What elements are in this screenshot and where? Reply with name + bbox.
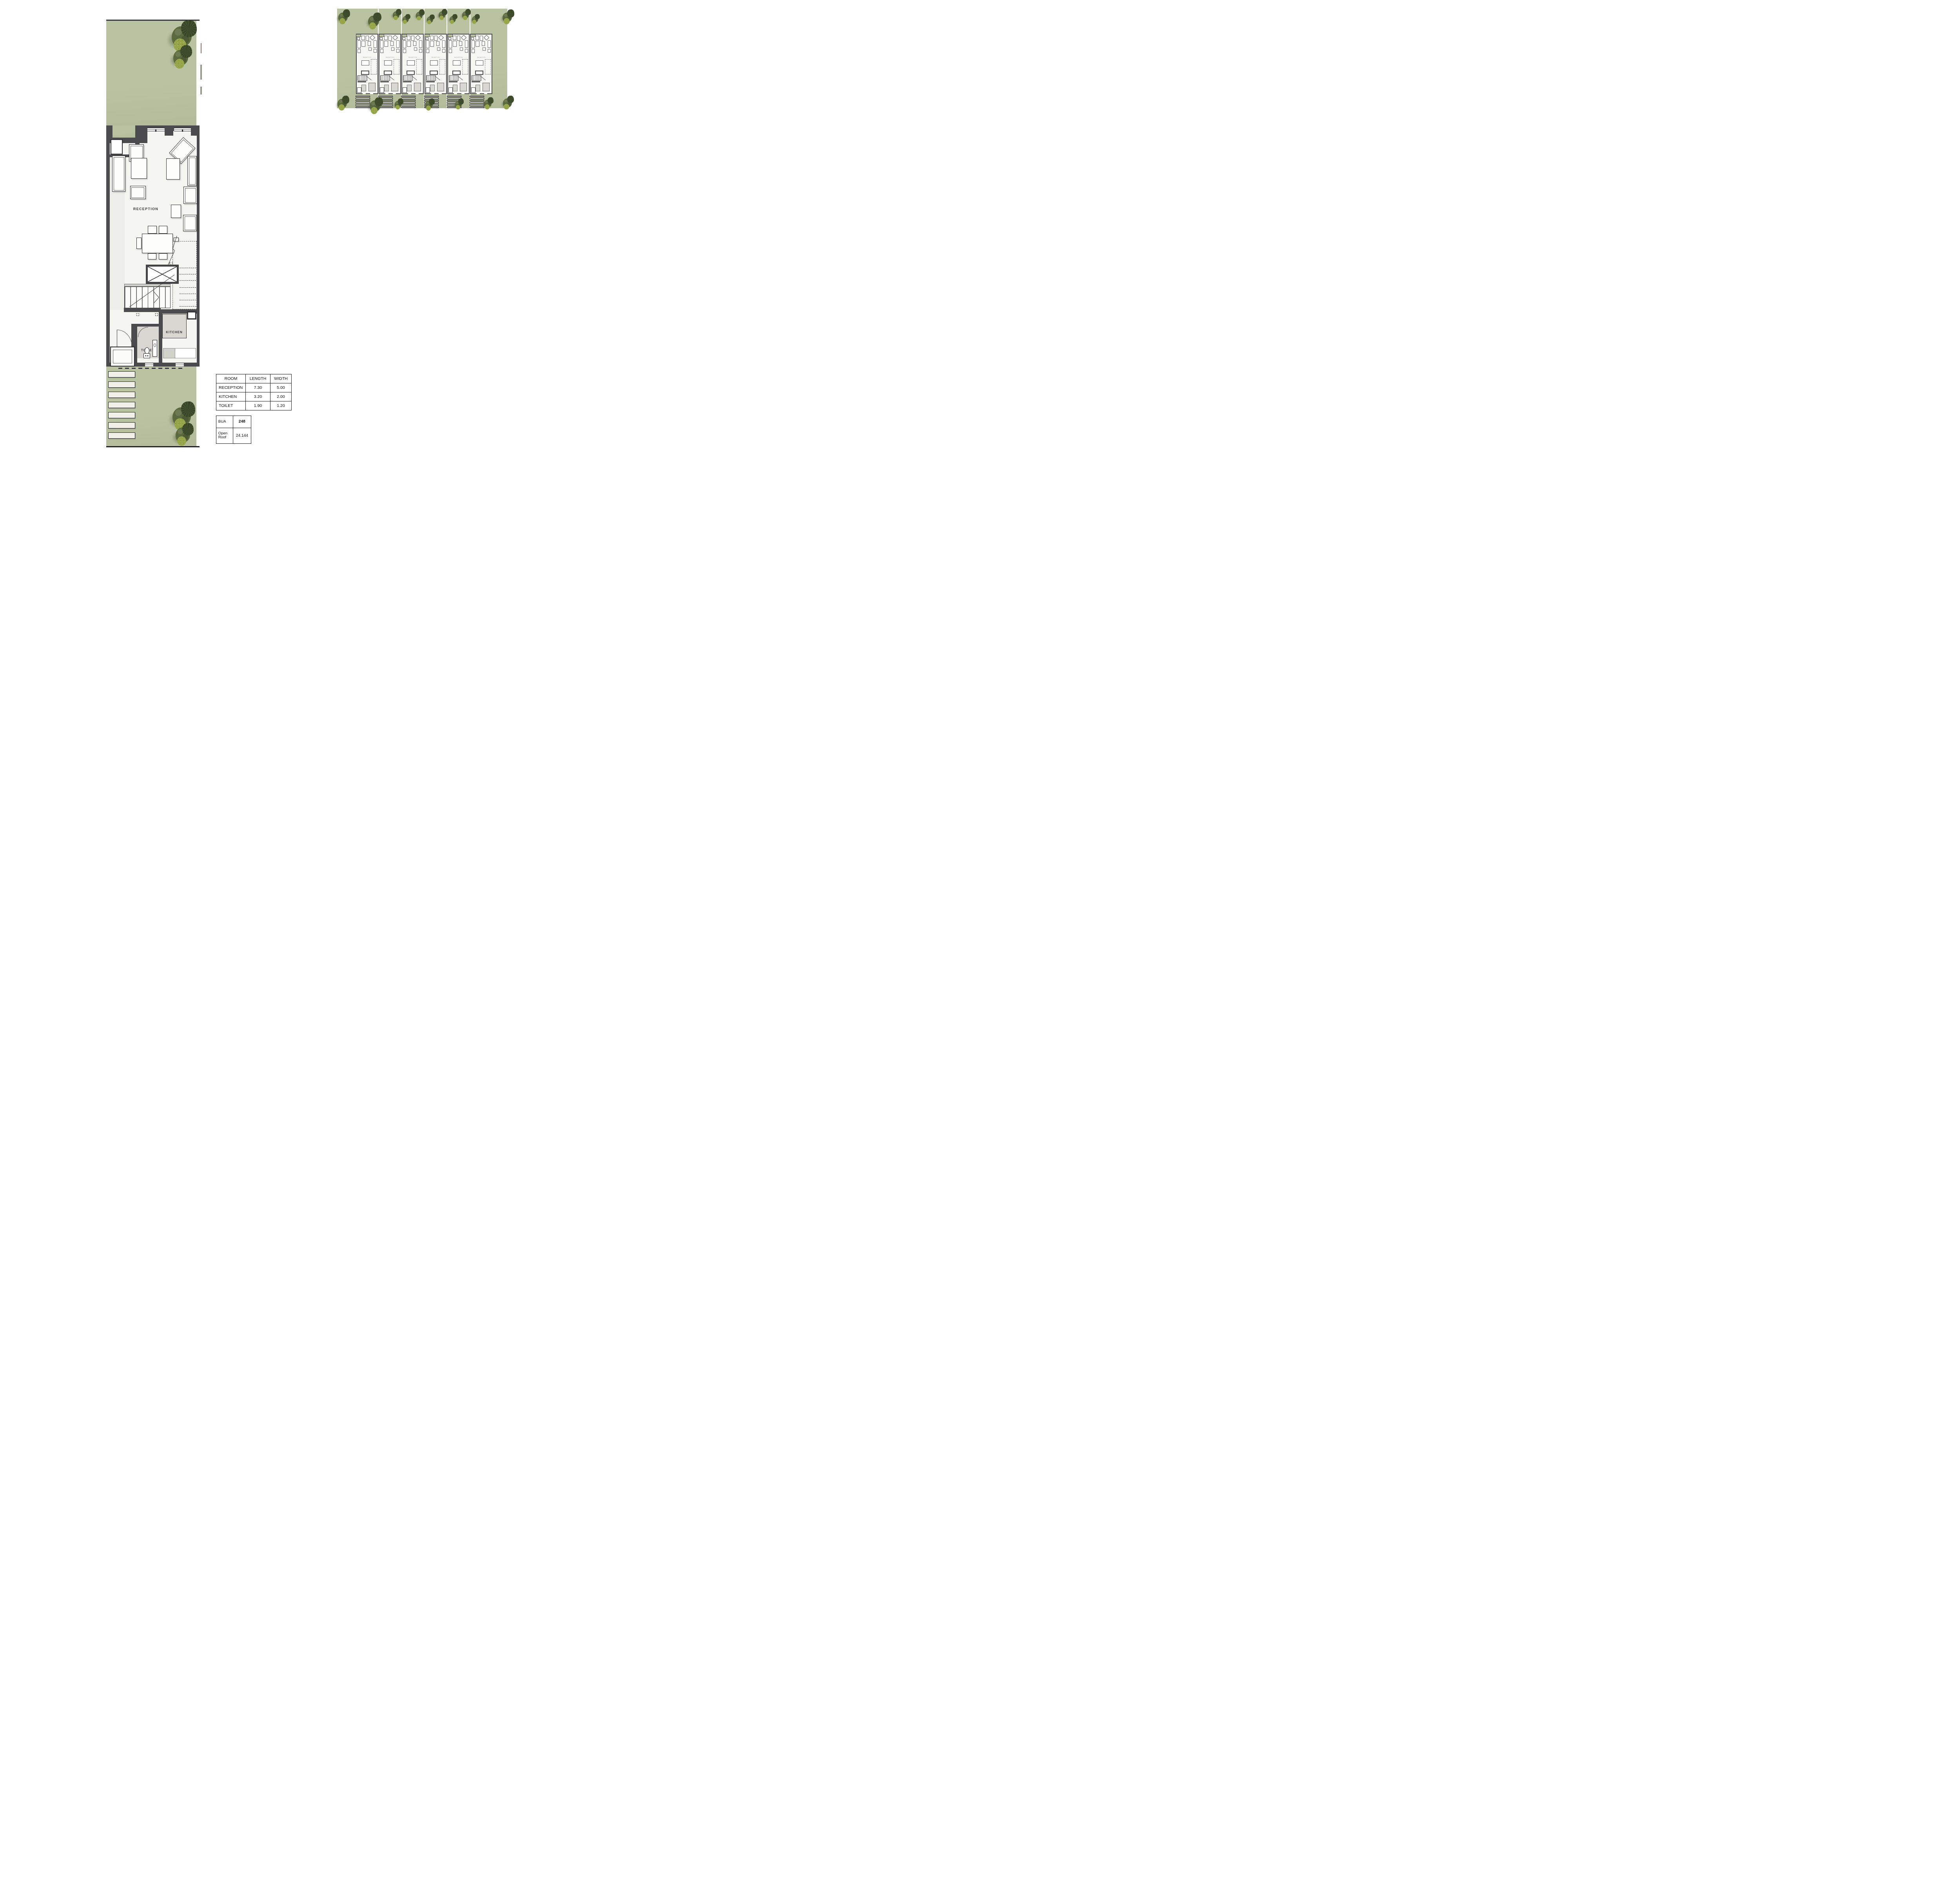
column-header: LENGTH bbox=[246, 374, 270, 383]
unit-porch bbox=[471, 87, 475, 93]
unit-sofa-rotated bbox=[438, 35, 444, 40]
unit-elevator-icon bbox=[452, 71, 461, 75]
site-plan-unit: RECEPTION bbox=[356, 34, 378, 94]
table-cell: RECEPTION bbox=[216, 383, 246, 392]
floorplan-sheet: RECEPTION bbox=[0, 0, 516, 472]
unit-dining-table bbox=[361, 60, 369, 65]
path-stone bbox=[470, 100, 484, 102]
unit-void-area bbox=[462, 59, 468, 74]
site-plan-unit: RECEPTION bbox=[425, 34, 447, 94]
tree-icon bbox=[368, 13, 381, 29]
unit-reception-label: RECEPTION bbox=[449, 56, 468, 58]
unit-elevator-icon bbox=[407, 71, 415, 75]
table-cell: Open Roof bbox=[216, 428, 233, 443]
unit-toilet bbox=[407, 85, 412, 91]
unit-garden-notch bbox=[379, 34, 384, 37]
unit-porch bbox=[357, 87, 361, 93]
unit-garden-notch bbox=[425, 34, 430, 37]
unit-reception-label: RECEPTION bbox=[403, 56, 422, 58]
unit-stairs bbox=[426, 75, 436, 81]
path-stone bbox=[401, 107, 416, 108]
unit-sofa-rotated bbox=[370, 35, 375, 40]
unit-void-area bbox=[485, 59, 491, 74]
unit-toilet bbox=[475, 85, 480, 91]
path-stone bbox=[378, 96, 393, 97]
unit-void-area bbox=[416, 59, 422, 74]
tree-icon bbox=[392, 10, 401, 20]
table-row: BUA248 bbox=[216, 416, 251, 428]
site-plan-unit: RECEPTION bbox=[447, 34, 470, 94]
room-dimensions-table: ROOMLENGTHWIDTH RECEPTION7.305.00KITCHEN… bbox=[216, 374, 292, 410]
table-cell: 3.20 bbox=[246, 392, 270, 401]
tree-icon bbox=[338, 10, 350, 24]
unit-dining-table bbox=[475, 60, 483, 65]
unit-kitchen bbox=[414, 83, 421, 91]
unit-porch bbox=[448, 87, 453, 93]
tree-icon bbox=[394, 99, 403, 109]
path-stone bbox=[470, 98, 484, 99]
unit-shaft-icon bbox=[357, 37, 360, 40]
table-header-row: ROOMLENGTHWIDTH bbox=[216, 374, 292, 383]
unit-garden-notch bbox=[448, 34, 453, 37]
table-row: RECEPTION7.305.00 bbox=[216, 383, 292, 392]
tree-icon bbox=[455, 99, 463, 109]
unit-stairs bbox=[380, 75, 390, 81]
path-stone bbox=[470, 96, 484, 97]
unit-stairs bbox=[449, 75, 459, 81]
path-stone bbox=[356, 100, 370, 102]
unit-garden-notch bbox=[471, 34, 475, 37]
unit-kitchen bbox=[483, 83, 490, 91]
unit-toilet bbox=[453, 85, 457, 91]
site-plan-unit: RECEPTION bbox=[401, 34, 424, 94]
path-stone bbox=[401, 104, 416, 106]
unit-void-area bbox=[394, 59, 399, 74]
path-stone bbox=[424, 96, 439, 97]
unit-shaft-icon bbox=[380, 37, 383, 40]
table-cell: 2.00 bbox=[270, 392, 292, 401]
table-cell: 248 bbox=[233, 416, 251, 428]
unit-shaft-icon bbox=[426, 37, 428, 40]
unit-dining-table bbox=[407, 60, 415, 65]
unit-kitchen bbox=[368, 83, 376, 91]
unit-garden-notch bbox=[402, 34, 407, 37]
path-stone bbox=[447, 96, 461, 97]
unit-void-area bbox=[371, 59, 377, 74]
unit-elevator-icon bbox=[430, 71, 438, 75]
table-row: Open Roof24.144 bbox=[216, 428, 251, 443]
tree-icon bbox=[369, 98, 383, 113]
unit-dining-table bbox=[384, 60, 392, 65]
path-stone bbox=[401, 102, 416, 103]
unit-elevator-icon bbox=[475, 71, 483, 75]
tree-icon bbox=[484, 98, 493, 109]
table-cell: BUA bbox=[216, 416, 233, 428]
unit-void-area bbox=[439, 59, 445, 74]
tree-icon bbox=[337, 96, 349, 110]
table-cell: 24.144 bbox=[233, 428, 251, 443]
table-cell: 5.00 bbox=[270, 383, 292, 392]
unit-reception-label: RECEPTION bbox=[472, 56, 491, 58]
path-stone bbox=[401, 96, 416, 97]
unit-elevator-icon bbox=[361, 71, 369, 75]
table-row: TOILET1.901.20 bbox=[216, 401, 292, 410]
unit-shaft-icon bbox=[448, 37, 451, 40]
table-cell: KITCHEN bbox=[216, 392, 246, 401]
tree-icon bbox=[416, 10, 424, 20]
table-cell: 1.20 bbox=[270, 401, 292, 410]
unit-stairs bbox=[358, 75, 367, 81]
unit-sofa-rotated bbox=[392, 35, 398, 40]
table-row: KITCHEN3.202.00 bbox=[216, 392, 292, 401]
unit-reception-label: RECEPTION bbox=[426, 56, 445, 58]
unit-elevator-icon bbox=[384, 71, 392, 75]
unit-kitchen bbox=[437, 83, 444, 91]
unit-sofa-rotated bbox=[415, 35, 421, 40]
unit-reception-label: RECEPTION bbox=[380, 56, 399, 58]
path-stone bbox=[401, 98, 416, 99]
tree-icon bbox=[438, 10, 447, 20]
unit-kitchen bbox=[391, 83, 398, 91]
table-cell: 7.30 bbox=[246, 383, 270, 392]
table-cell: 1.90 bbox=[246, 401, 270, 410]
unit-porch bbox=[403, 87, 407, 93]
unit-dining-table bbox=[430, 60, 438, 65]
unit-sofa-rotated bbox=[461, 35, 466, 40]
column-header: WIDTH bbox=[270, 374, 292, 383]
table-cell: TOILET bbox=[216, 401, 246, 410]
tree-icon bbox=[502, 10, 514, 24]
unit-toilet bbox=[384, 85, 389, 91]
unit-shaft-icon bbox=[403, 37, 405, 40]
tree-icon bbox=[426, 15, 434, 24]
tree-icon bbox=[503, 96, 514, 109]
column-header: ROOM bbox=[216, 374, 246, 383]
unit-shaft-icon bbox=[471, 37, 474, 40]
unit-sofa-rotated bbox=[484, 35, 489, 40]
site-plan-unit: RECEPTION bbox=[470, 34, 492, 94]
unit-dining-table bbox=[453, 60, 461, 65]
tree-icon bbox=[472, 15, 479, 24]
tree-icon bbox=[462, 10, 470, 20]
area-table: BUA248Open Roof24.144 bbox=[216, 416, 251, 444]
tree-icon bbox=[425, 99, 434, 110]
unit-kitchen bbox=[460, 83, 467, 91]
path-stone bbox=[356, 96, 370, 97]
unit-reception-label: RECEPTION bbox=[358, 56, 377, 58]
unit-toilet bbox=[430, 85, 435, 91]
path-stone bbox=[401, 100, 416, 102]
path-stone bbox=[356, 98, 370, 99]
tree-icon bbox=[402, 15, 410, 24]
unit-porch bbox=[426, 87, 430, 93]
unit-toilet bbox=[361, 85, 366, 91]
tree-icon bbox=[449, 15, 457, 24]
site-plan-unit: RECEPTION bbox=[379, 34, 401, 94]
unit-porch bbox=[380, 87, 384, 93]
unit-garden-notch bbox=[356, 34, 361, 37]
